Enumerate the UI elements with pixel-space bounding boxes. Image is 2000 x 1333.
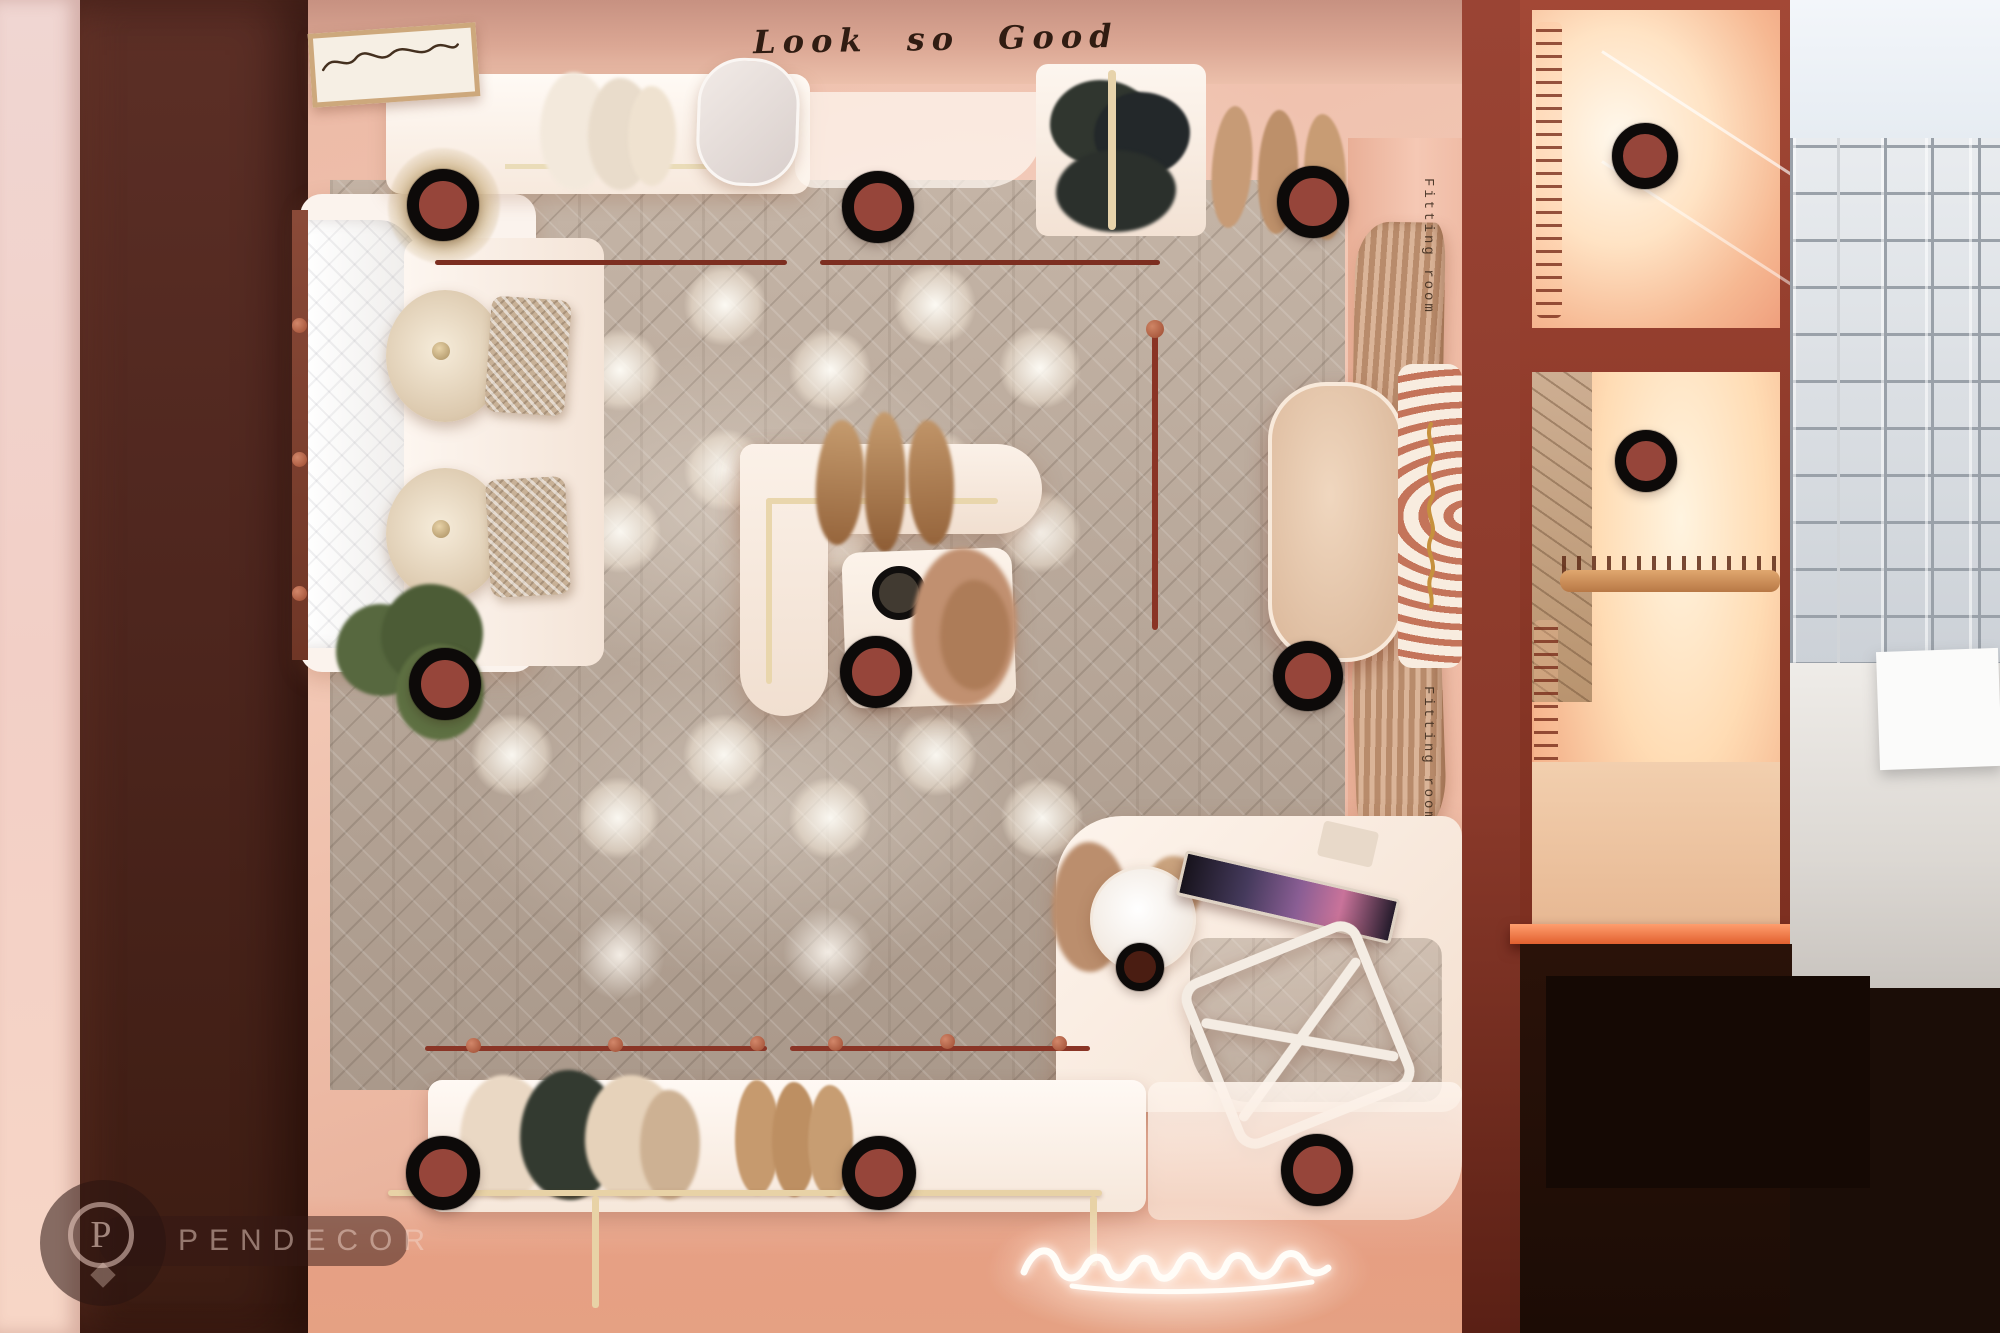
hotspot-rack-center[interactable] xyxy=(842,1136,916,1210)
hotspot-cash-desk[interactable] xyxy=(1116,943,1164,991)
hotspot-fitting-bench[interactable] xyxy=(1273,641,1343,711)
hotspot-rack-left[interactable] xyxy=(406,1136,480,1210)
hotspot-closet-middle[interactable] xyxy=(1615,430,1677,492)
hotspot-closet-top[interactable] xyxy=(1612,123,1678,189)
hotspot-window-display[interactable] xyxy=(407,169,479,241)
hotspot-layer xyxy=(0,0,2000,1333)
badge-ring: P xyxy=(68,1202,134,1268)
hotspot-rack-right[interactable] xyxy=(1281,1134,1353,1206)
hotspot-center-display[interactable] xyxy=(840,636,912,708)
pendecor-p-badge-icon: P xyxy=(40,1180,166,1306)
hotspot-shoe-display[interactable] xyxy=(1277,166,1349,238)
watermark-brand-text: PENDECOR xyxy=(178,1224,436,1257)
badge-monogram: P xyxy=(90,1214,111,1256)
store-top-view-render: Fitting room Fitting room Look so xyxy=(0,0,2000,1333)
hotspot-lounge-plant[interactable] xyxy=(409,648,481,720)
hotspot-entry-center[interactable] xyxy=(842,171,914,243)
